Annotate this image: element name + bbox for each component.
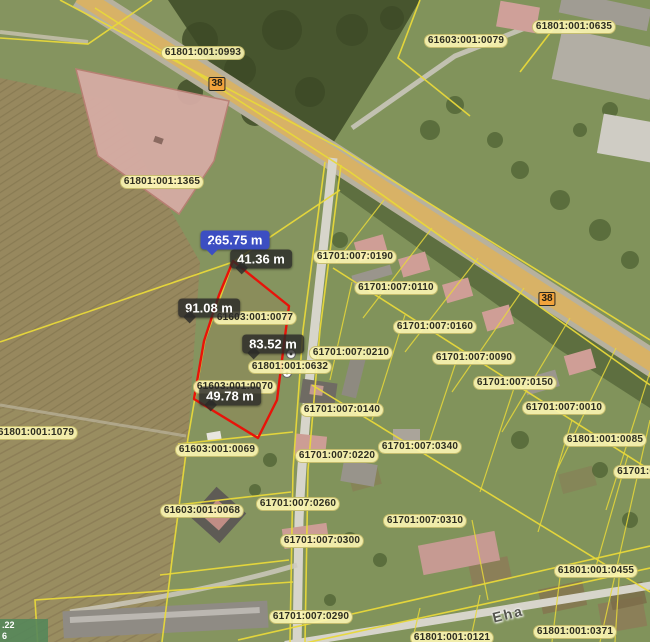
- map-canvas[interactable]: 61801:001:099361603:001:007961801:001:06…: [0, 0, 650, 642]
- coordinate-line: .22: [2, 620, 48, 631]
- coordinate-readout: .22 6: [0, 619, 48, 642]
- coordinate-line: 6: [2, 631, 48, 642]
- aerial-imagery-layer: [0, 0, 650, 642]
